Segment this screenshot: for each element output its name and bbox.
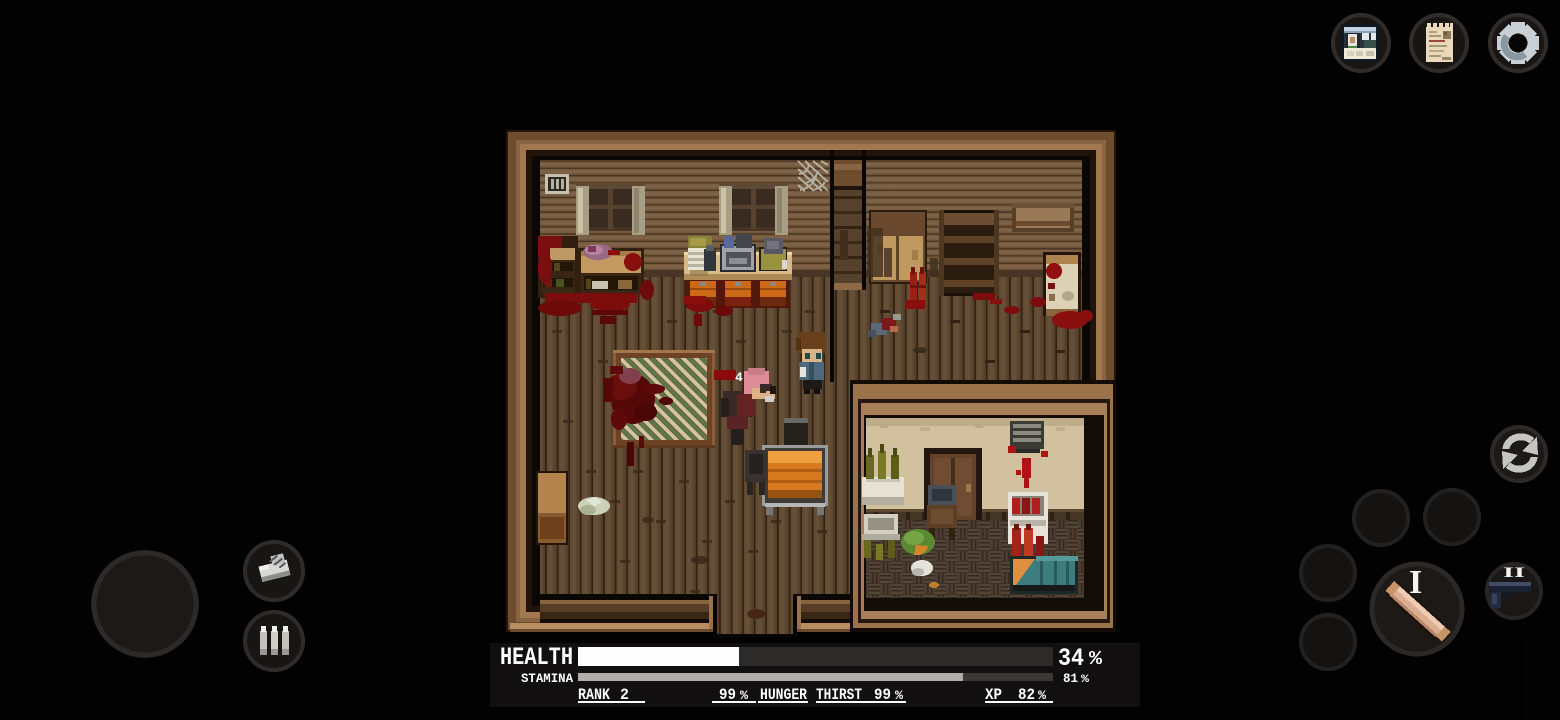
svg-text:4: 4 [735, 370, 743, 385]
svg-text:%: % [1089, 648, 1103, 670]
svg-text:%: % [1081, 674, 1089, 686]
svg-text:II: II [1503, 565, 1525, 581]
svg-text:STAMINA: STAMINA [521, 671, 573, 686]
svg-text:%: % [895, 688, 903, 703]
svg-text:%: % [740, 688, 748, 703]
svg-text:%: % [1038, 688, 1046, 703]
svg-text:HEALTH: HEALTH [500, 643, 573, 672]
svg-text:34: 34 [1058, 644, 1084, 673]
svg-text:81: 81 [1063, 671, 1078, 686]
